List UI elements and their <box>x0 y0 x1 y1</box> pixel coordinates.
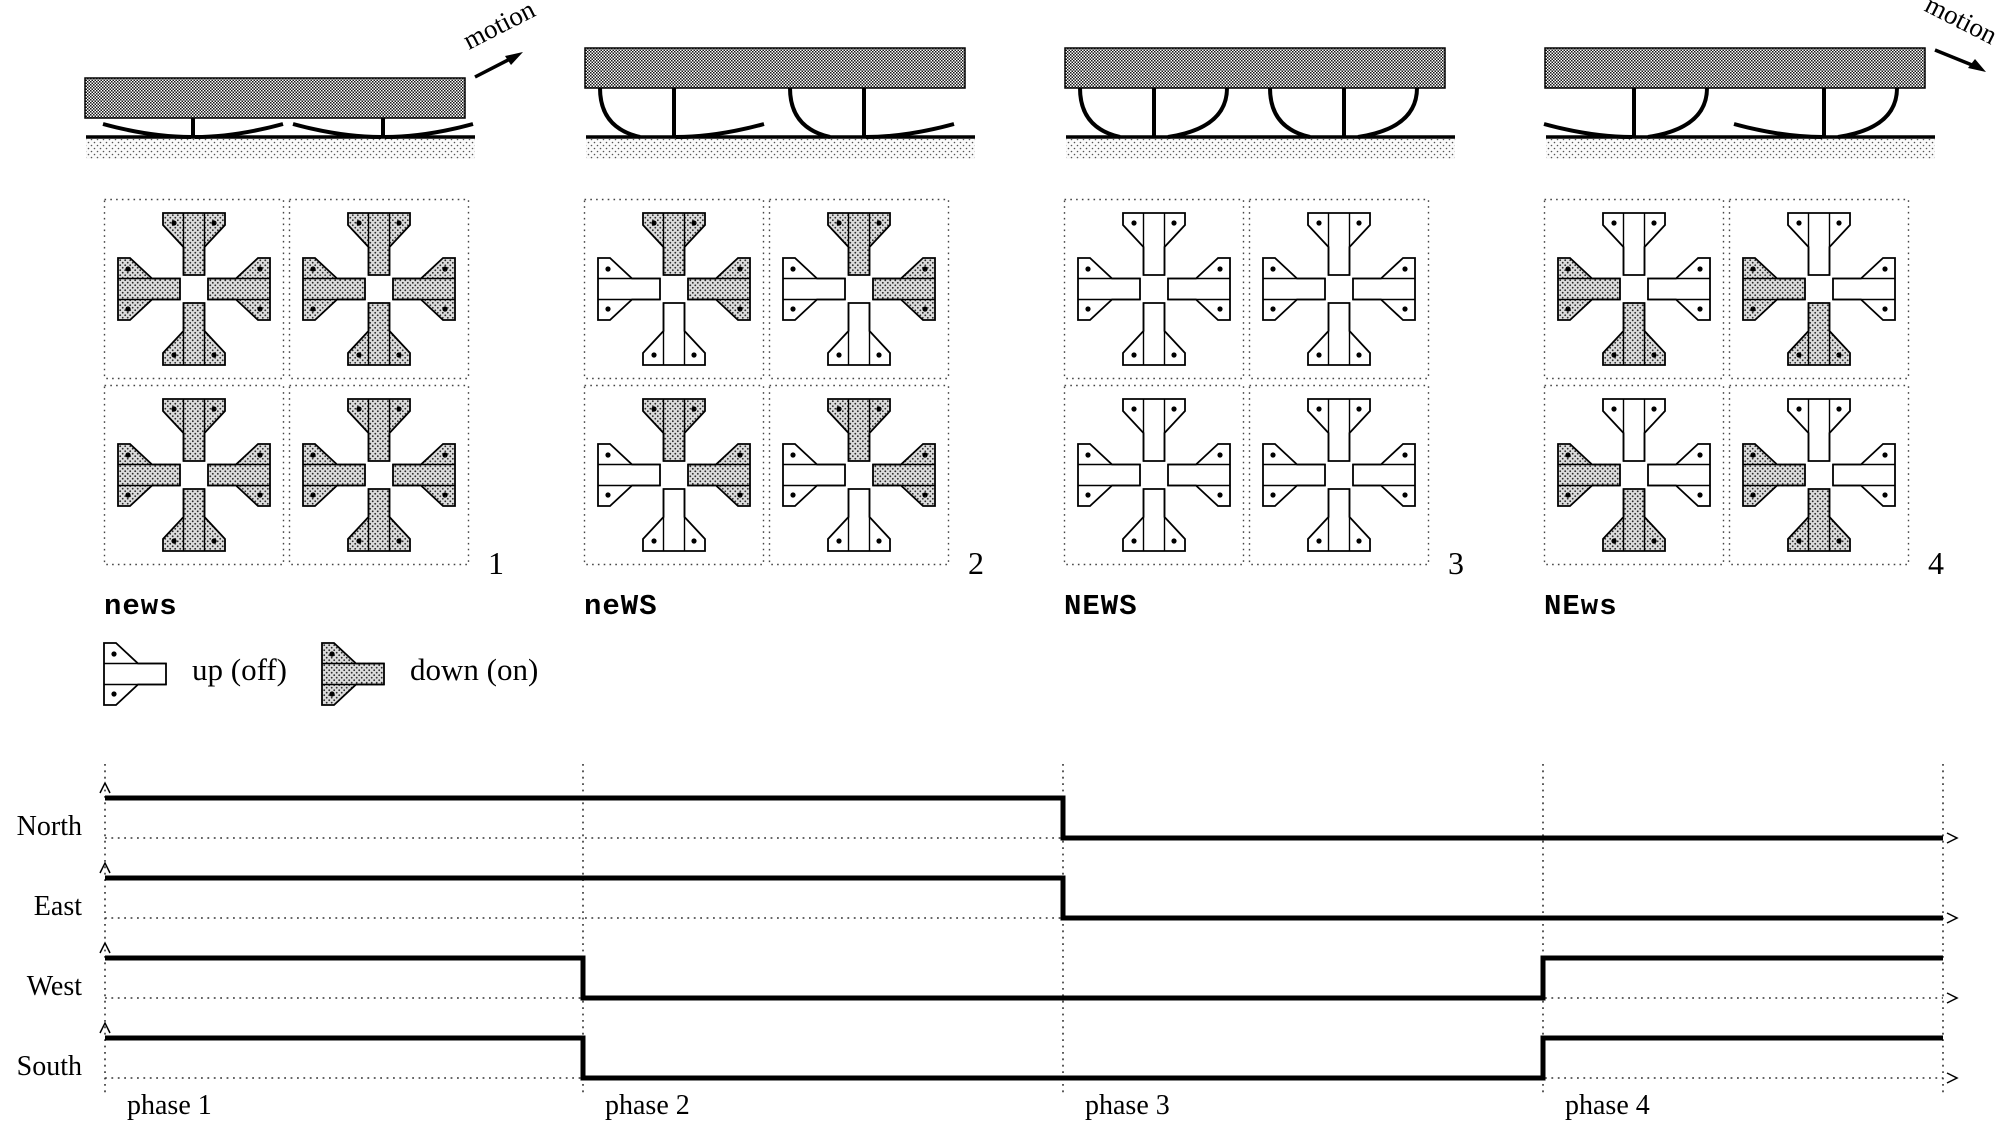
arm-north-down <box>828 399 890 461</box>
phase-number-3: 3 <box>1448 545 1464 582</box>
arm-east-down <box>208 444 270 506</box>
arm-west-up <box>1078 444 1140 506</box>
axis-up-arrow <box>100 943 110 953</box>
figure-canvas: motion motion <box>0 0 2016 1141</box>
cilium-left <box>1080 88 1120 137</box>
actuator-cell-phase-1 <box>103 198 285 380</box>
waveform-south <box>105 1038 1943 1078</box>
arm-west-down <box>303 258 365 320</box>
actuator-cell-phase-3 <box>1063 384 1245 566</box>
side-view-phase-3 <box>1040 0 1496 170</box>
legend-up-icon <box>100 632 184 716</box>
actuator-cell-phase-3 <box>1248 198 1430 380</box>
arm-north-down <box>643 399 705 461</box>
arm-south-up <box>1308 489 1370 551</box>
plate <box>1065 48 1445 88</box>
arm-north-up <box>1123 213 1185 275</box>
arm-south-down <box>1603 303 1665 365</box>
arm-north-down <box>163 213 225 275</box>
ground <box>1546 139 1935 159</box>
arm-south-up <box>643 303 705 365</box>
arm-east-up <box>1833 258 1895 320</box>
arm-west-down <box>118 258 180 320</box>
arm-south-down <box>1788 303 1850 365</box>
arm-west-down <box>303 444 365 506</box>
side-view-phase-4 <box>1520 0 2000 170</box>
arm-east-down <box>393 444 455 506</box>
cilium-left <box>1544 124 1632 137</box>
arm-south-up <box>643 489 705 551</box>
actuator-cell-phase-2 <box>768 384 950 566</box>
signal-label-north: North <box>0 812 82 842</box>
arm-west-down <box>1743 258 1805 320</box>
cilium-right <box>195 124 283 137</box>
plate <box>85 78 465 118</box>
arm-south-up <box>828 489 890 551</box>
cilium-right <box>1648 88 1707 137</box>
arm-south-down <box>1603 489 1665 551</box>
arm-east-down <box>688 444 750 506</box>
arm-north-down <box>348 399 410 461</box>
signal-label-south: South <box>0 1052 82 1082</box>
cilium-left <box>103 124 191 137</box>
arm-south-down <box>1788 489 1850 551</box>
arm-west-up <box>598 444 660 506</box>
ground <box>586 139 975 159</box>
arm-south-up <box>1123 489 1185 551</box>
actuator-cell-phase-4 <box>1543 384 1725 566</box>
waveform-east <box>105 878 1943 918</box>
cilium-right <box>866 124 954 137</box>
phase-label-2: phase 2 <box>605 1090 690 1122</box>
cilium-left <box>1734 124 1822 137</box>
state-label-phase-1: news <box>104 590 178 623</box>
legend-down-label: down (on) <box>410 652 538 688</box>
cilium-left <box>293 124 381 137</box>
arm-west-up <box>1078 258 1140 320</box>
phase-label-3: phase 3 <box>1085 1090 1170 1122</box>
arm-east-up <box>1168 258 1230 320</box>
arm-east-down <box>873 444 935 506</box>
axis-right-arrow <box>1947 913 1957 923</box>
actuator-cell-phase-1 <box>103 384 285 566</box>
arm-north-up <box>1603 213 1665 275</box>
cilium-left <box>790 88 830 137</box>
cilium-right <box>385 124 473 137</box>
arm-west-down <box>118 444 180 506</box>
axis-right-arrow <box>1947 833 1957 843</box>
actuator-cell-phase-4 <box>1728 198 1910 380</box>
cilium-left <box>1270 88 1310 137</box>
arm-south-down <box>348 303 410 365</box>
arm-north-up <box>1123 399 1185 461</box>
arm-east-up <box>1168 444 1230 506</box>
axis-right-arrow <box>1947 1073 1957 1083</box>
arm-west-up <box>598 258 660 320</box>
pattern-defs <box>0 0 2 2</box>
actuator-cell-phase-3 <box>1248 384 1430 566</box>
state-label-phase-2: neWS <box>584 590 658 623</box>
axis-up-arrow <box>100 783 110 793</box>
state-label-phase-4: NEws <box>1544 590 1618 623</box>
cilium-right <box>1358 88 1417 137</box>
arm-south-down <box>163 489 225 551</box>
phase-number-1: 1 <box>488 545 504 582</box>
signal-label-east: East <box>0 892 82 922</box>
arm-north-up <box>1788 213 1850 275</box>
signal-label-west: West <box>0 972 82 1002</box>
arm-east-up <box>1648 444 1710 506</box>
waveform-north <box>105 798 1943 838</box>
arm-east-down <box>393 258 455 320</box>
arm-north-down <box>348 213 410 275</box>
cilium-right <box>1838 88 1897 137</box>
phase-number-2: 2 <box>968 545 984 582</box>
actuator-cell-phase-2 <box>768 198 950 380</box>
actuator-cell-phase-4 <box>1543 198 1725 380</box>
actuator-cell-phase-1 <box>288 198 470 380</box>
cilium-left <box>600 88 640 137</box>
ground <box>1066 139 1455 159</box>
legend-up-label: up (off) <box>192 652 287 688</box>
arm-south-down <box>348 489 410 551</box>
phase-number-4: 4 <box>1928 545 1944 582</box>
arm-north-up <box>1308 399 1370 461</box>
actuator-cell-phase-1 <box>288 384 470 566</box>
arm-east-up <box>1833 444 1895 506</box>
arm-east-up <box>1648 258 1710 320</box>
arm-north-up <box>1308 213 1370 275</box>
cilium-right <box>676 124 764 137</box>
arm-north-down <box>643 213 705 275</box>
arm-north-up <box>1603 399 1665 461</box>
arm-west-up <box>1263 444 1325 506</box>
phase-label-1: phase 1 <box>127 1090 212 1122</box>
actuator-cell-phase-2 <box>583 198 765 380</box>
arm-west-up <box>1263 258 1325 320</box>
arm-west-up <box>783 444 845 506</box>
actuator-cell-phase-2 <box>583 384 765 566</box>
arm-east-down <box>208 258 270 320</box>
arm-east-up <box>1353 258 1415 320</box>
plate <box>585 48 965 88</box>
plate <box>1545 48 1925 88</box>
motion-arrow <box>505 52 523 65</box>
arm-north-up <box>1788 399 1850 461</box>
arm-west-down <box>1558 444 1620 506</box>
axis-right-arrow <box>1947 993 1957 1003</box>
ground <box>86 139 475 159</box>
arm-east-up <box>1353 444 1415 506</box>
legend-down-icon <box>318 632 402 716</box>
side-view-phase-2 <box>560 0 1016 170</box>
cilium-right <box>1168 88 1227 137</box>
actuator-cell-phase-3 <box>1063 198 1245 380</box>
arm-south-up <box>828 303 890 365</box>
motion-arrow <box>1968 59 1986 72</box>
arm-north-down <box>163 399 225 461</box>
arm-south-up <box>1123 303 1185 365</box>
arm-west-down <box>1743 444 1805 506</box>
arm-west-down <box>1558 258 1620 320</box>
arm-east-down <box>873 258 935 320</box>
timing-diagram <box>0 740 2016 1141</box>
phase-label-4: phase 4 <box>1565 1090 1650 1122</box>
waveform-west <box>105 958 1943 998</box>
actuator-cell-phase-4 <box>1728 384 1910 566</box>
arm-east-down <box>688 258 750 320</box>
arm-south-up <box>1308 303 1370 365</box>
arm-south-down <box>163 303 225 365</box>
arm-west-up <box>783 258 845 320</box>
arm-west-up <box>104 643 166 705</box>
arm-west-down <box>322 643 384 705</box>
side-view-phase-1 <box>60 0 530 170</box>
arm-north-down <box>828 213 890 275</box>
state-label-phase-3: NEWS <box>1064 590 1138 623</box>
